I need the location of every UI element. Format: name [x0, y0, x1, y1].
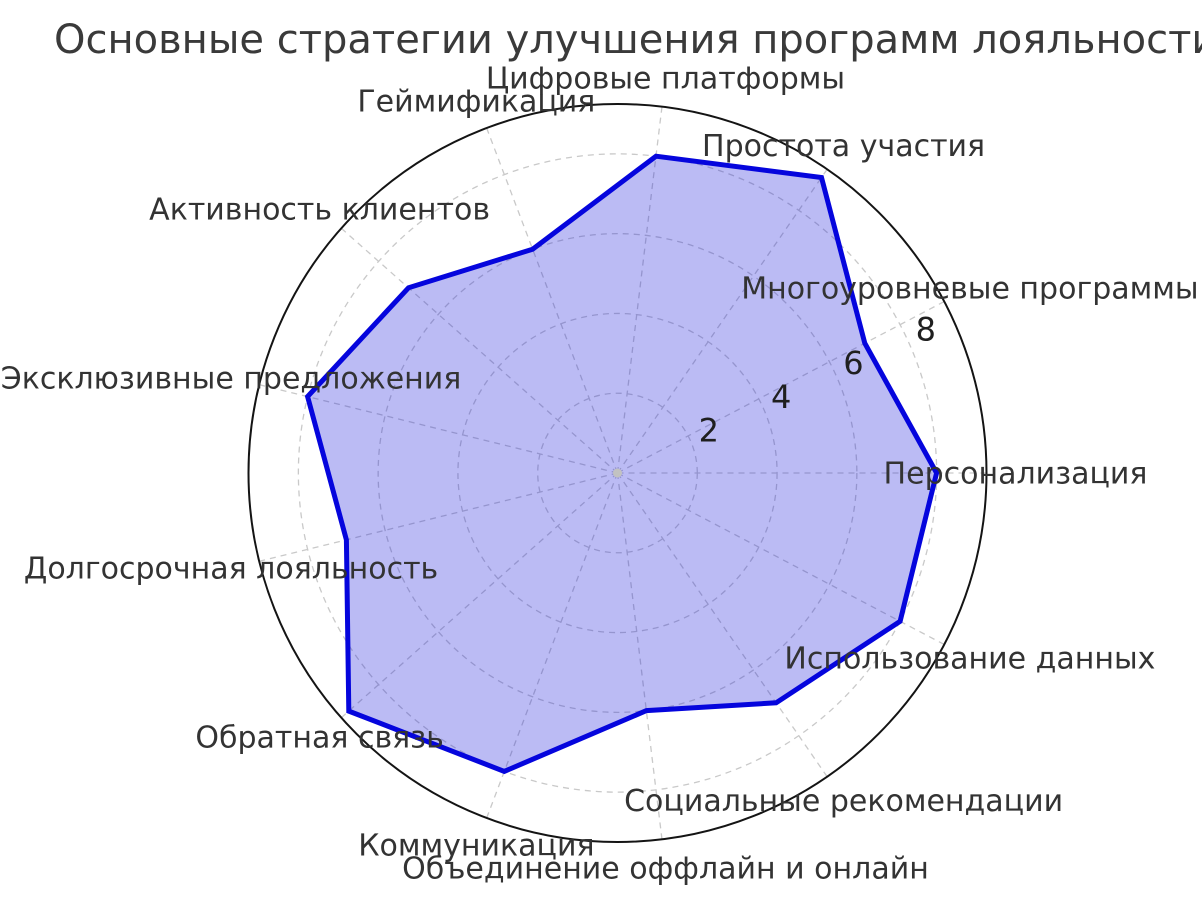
category-label: Простота участия [702, 129, 985, 164]
radial-tick-label: 8 [916, 310, 936, 348]
category-label: Социальные рекомендации [624, 784, 1063, 819]
radial-tick-label: 2 [699, 412, 719, 450]
category-label: Долгосрочная лояльность [24, 552, 438, 587]
center-dot [613, 469, 622, 478]
radar-chart-figure: Основные стратегии улучшения программ ло… [0, 0, 1202, 902]
category-label: Обратная связь [195, 720, 443, 755]
data-polygon [308, 156, 937, 771]
category-label: Многоуровневые программы [741, 272, 1198, 307]
category-label: Геймификация [357, 84, 595, 119]
radar-plot: 2468ПерсонализацияМногоуровневые програм… [0, 0, 1202, 902]
category-label: Использование данных [784, 641, 1155, 676]
category-label: Персонализация [884, 457, 1148, 492]
category-label: Объединение оффлайн и онлайн [402, 852, 929, 887]
radial-tick-label: 4 [771, 378, 791, 416]
radial-tick-label: 6 [843, 344, 863, 382]
category-label: Активность клиентов [149, 193, 490, 228]
category-label: Эксклюзивные предложения [1, 361, 462, 396]
